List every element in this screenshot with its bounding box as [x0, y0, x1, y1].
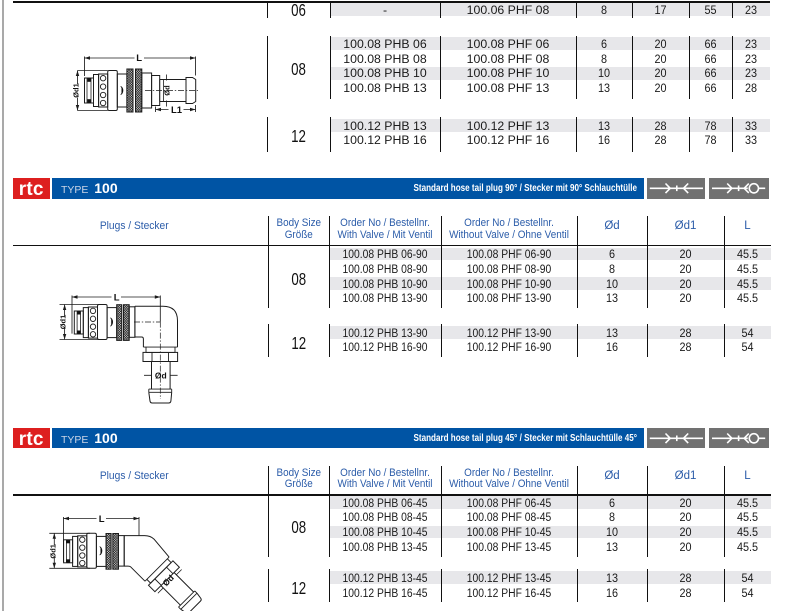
svg-text:Ød: Ød — [155, 370, 167, 380]
svg-text:Ød1: Ød1 — [72, 83, 81, 98]
svg-text:L: L — [99, 514, 105, 525]
svg-text:Ød: Ød — [163, 85, 172, 96]
svg-text:Ød1: Ød1 — [49, 544, 58, 559]
svg-text:Ød1: Ød1 — [59, 315, 68, 330]
svg-text:Ød: Ød — [160, 573, 175, 588]
svg-text:L: L — [136, 53, 142, 64]
svg-text:L1: L1 — [171, 105, 183, 116]
svg-text:L: L — [114, 292, 120, 303]
